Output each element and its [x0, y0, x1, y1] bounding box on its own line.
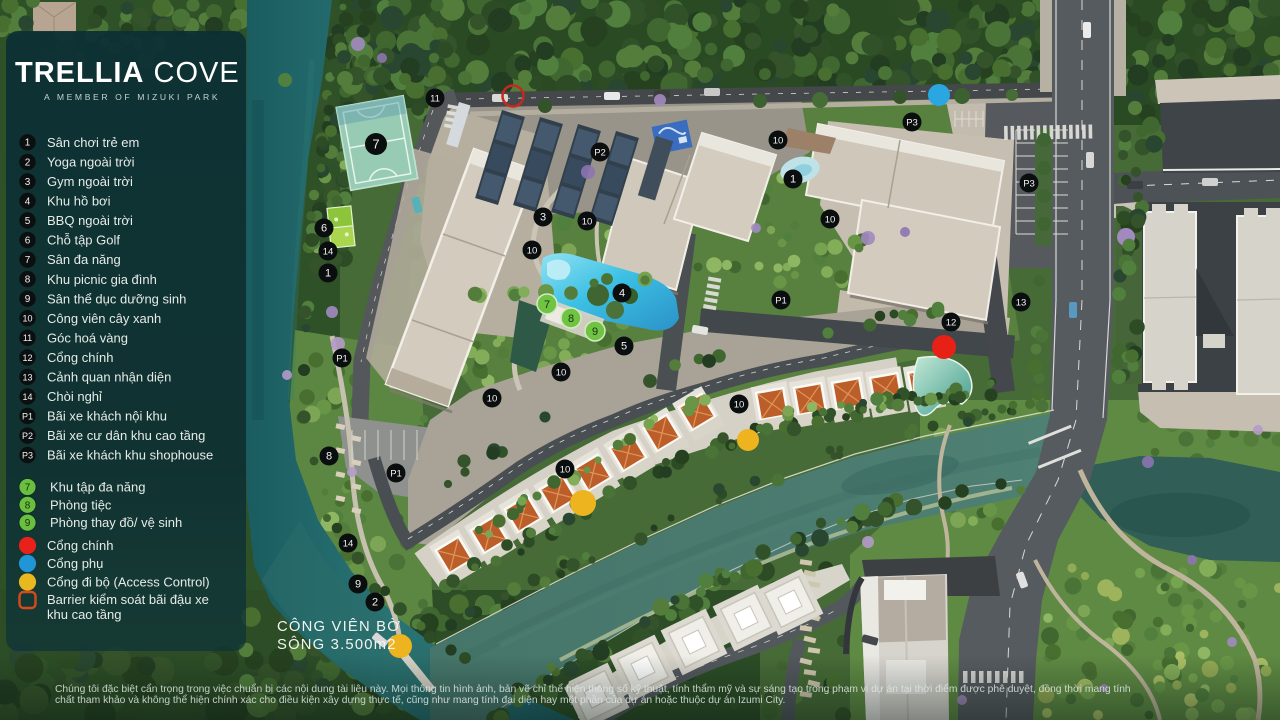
svg-text:Cảnh quan nhận diện: Cảnh quan nhận diện	[47, 370, 171, 385]
svg-text:P2: P2	[594, 148, 606, 159]
svg-text:9: 9	[355, 579, 361, 591]
svg-text:Công viên cây xanh: Công viên cây xanh	[47, 311, 161, 326]
svg-text:5: 5	[25, 216, 31, 227]
svg-text:Gym ngoài trời: Gym ngoài trời	[47, 174, 133, 189]
svg-text:Cổng chính: Cổng chính	[47, 350, 114, 365]
svg-text:14: 14	[323, 247, 334, 258]
svg-text:Bãi xe cư dân khu cao tầng: Bãi xe cư dân khu cao tầng	[47, 428, 205, 443]
svg-text:12: 12	[22, 353, 32, 363]
svg-text:7: 7	[25, 255, 31, 266]
svg-text:Cổng chính: Cổng chính	[47, 538, 114, 553]
svg-text:3: 3	[540, 212, 546, 224]
svg-text:7: 7	[544, 299, 550, 311]
svg-text:A MEMBER OF MIZUKI PARK: A MEMBER OF MIZUKI PARK	[44, 92, 220, 102]
svg-text:9: 9	[25, 294, 31, 305]
svg-text:Bãi xe khách nội khu: Bãi xe khách nội khu	[47, 409, 167, 424]
svg-text:Cổng đi bộ (Access Control): Cổng đi bộ (Access Control)	[47, 575, 210, 590]
svg-text:4: 4	[25, 196, 31, 207]
svg-text:11: 11	[23, 333, 32, 343]
svg-text:10: 10	[487, 394, 498, 405]
svg-text:P1: P1	[390, 469, 402, 480]
svg-text:chất tham khảo và không thể hi: chất tham khảo và không thể hiện chính x…	[55, 694, 785, 706]
svg-text:Phòng tiệc: Phòng tiệc	[50, 497, 112, 512]
svg-text:khu cao tầng: khu cao tầng	[47, 607, 121, 622]
svg-text:10: 10	[556, 368, 567, 379]
svg-text:P1: P1	[336, 354, 348, 365]
svg-text:10: 10	[560, 465, 571, 476]
svg-text:Sân thể dục dưỡng sinh: Sân thể dục dưỡng sinh	[47, 291, 186, 306]
svg-text:12: 12	[946, 318, 957, 329]
svg-text:7: 7	[372, 137, 379, 152]
svg-text:Bãi xe khách khu shophouse: Bãi xe khách khu shophouse	[47, 448, 213, 463]
svg-text:6: 6	[321, 223, 327, 235]
svg-text:Chòi nghỉ: Chòi nghỉ	[47, 389, 102, 404]
svg-text:8: 8	[326, 451, 332, 463]
svg-text:3: 3	[25, 177, 31, 188]
svg-text:P1: P1	[22, 411, 33, 421]
svg-text:7: 7	[25, 483, 31, 494]
svg-text:13: 13	[22, 372, 32, 382]
svg-text:8: 8	[25, 500, 31, 511]
svg-text:1: 1	[790, 174, 796, 186]
svg-text:8: 8	[25, 275, 31, 286]
svg-text:2: 2	[372, 597, 378, 609]
svg-text:14: 14	[22, 392, 32, 402]
svg-text:Yoga ngoài trời: Yoga ngoài trời	[47, 155, 135, 170]
svg-text:Khu tập đa năng: Khu tập đa năng	[50, 480, 145, 495]
svg-text:10: 10	[773, 136, 784, 147]
svg-text:SÔNG 3.500m2: SÔNG 3.500m2	[277, 636, 397, 653]
svg-text:Sân chơi trẻ em: Sân chơi trẻ em	[47, 135, 139, 150]
svg-text:Chỗ tập Golf: Chỗ tập Golf	[47, 233, 120, 248]
svg-text:10: 10	[22, 314, 32, 324]
svg-text:10: 10	[825, 215, 836, 226]
svg-text:9: 9	[592, 326, 598, 338]
svg-text:Khu picnic gia đình: Khu picnic gia đình	[47, 272, 157, 287]
svg-text:10: 10	[527, 246, 538, 257]
svg-text:1: 1	[325, 268, 331, 280]
svg-text:P3: P3	[1023, 179, 1035, 190]
svg-text:Cổng phụ: Cổng phụ	[47, 556, 103, 571]
svg-text:P3: P3	[906, 118, 918, 129]
svg-text:CÔNG VIÊN BỜ: CÔNG VIÊN BỜ	[277, 618, 401, 635]
svg-text:P1: P1	[775, 296, 787, 307]
svg-text:P2: P2	[22, 431, 33, 441]
svg-text:13: 13	[1016, 298, 1027, 309]
svg-text:10: 10	[582, 217, 593, 228]
svg-text:Khu hồ bơi: Khu hồ bơi	[47, 194, 111, 209]
svg-text:BBQ ngoài trời: BBQ ngoài trời	[47, 213, 133, 228]
svg-text:Barrier kiểm soát bãi đậu xe: Barrier kiểm soát bãi đậu xe	[47, 592, 209, 607]
svg-text:TRELLIA COVE: TRELLIA COVE	[15, 57, 240, 89]
svg-text:11: 11	[430, 94, 440, 105]
svg-text:Sân đa năng: Sân đa năng	[47, 252, 121, 267]
svg-text:Góc hoá vàng: Góc hoá vàng	[47, 330, 128, 345]
svg-text:Phòng thay đồ/ vệ sinh: Phòng thay đồ/ vệ sinh	[50, 515, 182, 530]
svg-text:9: 9	[25, 518, 31, 529]
svg-text:10: 10	[734, 400, 745, 411]
svg-text:Chúng tôi đặc biệt cẩn trọng t: Chúng tôi đặc biệt cẩn trọng trong việc …	[55, 683, 1131, 695]
svg-text:4: 4	[619, 288, 625, 300]
svg-text:6: 6	[25, 236, 31, 247]
svg-text:8: 8	[568, 313, 574, 325]
svg-text:5: 5	[621, 341, 627, 353]
svg-text:P3: P3	[22, 451, 33, 461]
svg-text:14: 14	[343, 539, 354, 550]
svg-text:1: 1	[25, 138, 31, 149]
svg-text:2: 2	[25, 157, 31, 168]
